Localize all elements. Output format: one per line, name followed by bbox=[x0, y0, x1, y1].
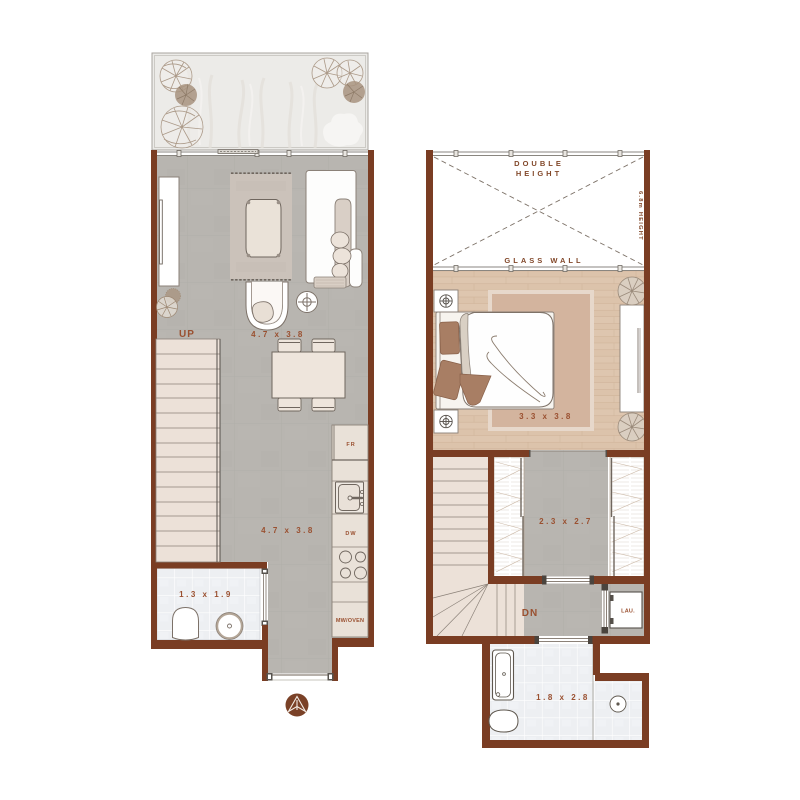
svg-text:LAU.: LAU. bbox=[621, 609, 635, 615]
svg-text:DW: DW bbox=[345, 531, 356, 537]
svg-text:4.7 x 3.8: 4.7 x 3.8 bbox=[251, 330, 305, 339]
svg-text:FR: FR bbox=[346, 442, 355, 448]
svg-text:MW/OVEN: MW/OVEN bbox=[336, 618, 364, 624]
svg-text:DOUBLE: DOUBLE bbox=[514, 159, 564, 168]
svg-text:HEIGHT: HEIGHT bbox=[516, 169, 562, 178]
svg-text:4.7 x 3.8: 4.7 x 3.8 bbox=[261, 526, 315, 535]
svg-text:1.8 x 2.8: 1.8 x 2.8 bbox=[536, 693, 590, 702]
svg-text:1.3 x 1.9: 1.3 x 1.9 bbox=[179, 590, 233, 599]
svg-text:6.8m HEIGHT: 6.8m HEIGHT bbox=[637, 191, 643, 241]
svg-text:2.3 x 2.7: 2.3 x 2.7 bbox=[539, 517, 593, 526]
svg-text:UP: UP bbox=[179, 329, 195, 340]
svg-text:DN: DN bbox=[522, 608, 538, 619]
svg-text:GLASS WALL: GLASS WALL bbox=[504, 256, 583, 265]
svg-text:3.3 x 3.8: 3.3 x 3.8 bbox=[519, 412, 573, 421]
